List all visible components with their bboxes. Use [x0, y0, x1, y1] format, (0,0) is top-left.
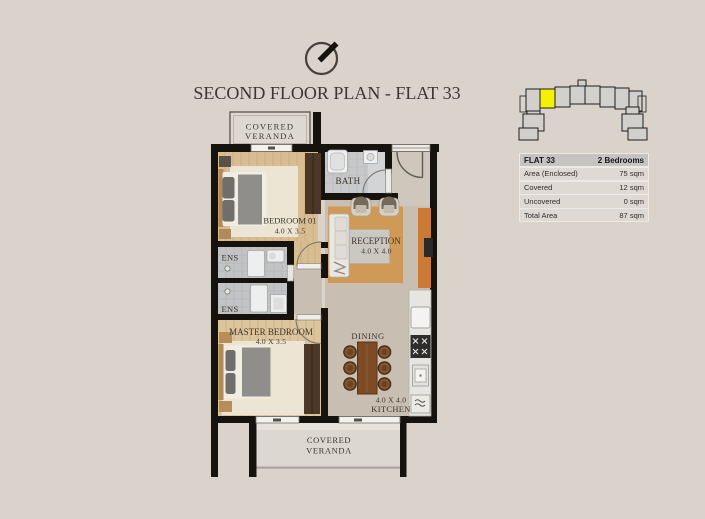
svg-text:COVERED: COVERED — [246, 122, 295, 132]
svg-text:RECEPTION: RECEPTION — [351, 236, 401, 246]
svg-text:MASTER BEDROOM: MASTER BEDROOM — [229, 327, 313, 337]
svg-text:SECOND FLOOR PLAN - FLAT 33: SECOND FLOOR PLAN - FLAT 33 — [193, 83, 460, 103]
svg-text:VERANDA: VERANDA — [306, 446, 352, 456]
svg-text:4.0 X 3.5: 4.0 X 3.5 — [275, 227, 306, 236]
svg-text:BEDROOM 01: BEDROOM 01 — [263, 216, 316, 226]
svg-text:4.0 X 3.5: 4.0 X 3.5 — [256, 337, 287, 346]
svg-text:VERANDA: VERANDA — [245, 131, 295, 141]
svg-text:ENS: ENS — [222, 253, 239, 263]
svg-text:KITCHEN: KITCHEN — [371, 404, 410, 414]
svg-text:4.0 X 4.0: 4.0 X 4.0 — [361, 247, 392, 256]
svg-text:BATH: BATH — [335, 176, 360, 186]
svg-text:COVERED: COVERED — [307, 435, 351, 445]
svg-text:ENS: ENS — [222, 304, 239, 314]
svg-text:DINING: DINING — [351, 331, 384, 341]
